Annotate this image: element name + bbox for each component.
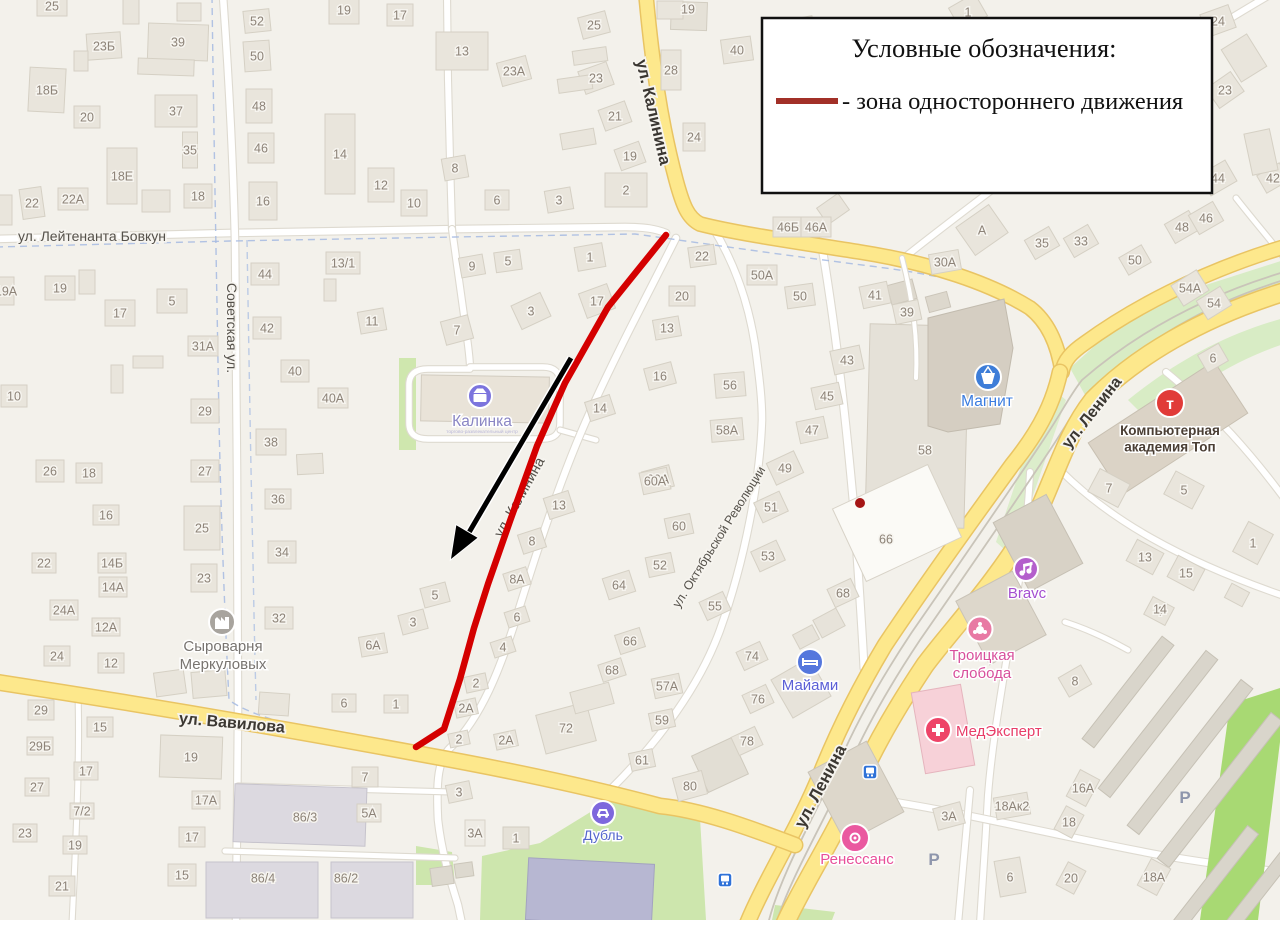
svg-text:50: 50 xyxy=(1128,254,1142,268)
svg-text:1: 1 xyxy=(587,251,594,265)
svg-text:78: 78 xyxy=(740,735,754,749)
svg-text:43: 43 xyxy=(840,354,854,368)
svg-text:14Б: 14Б xyxy=(101,557,123,571)
svg-text:6А: 6А xyxy=(365,639,381,653)
svg-text:6: 6 xyxy=(1210,352,1217,366)
svg-text:13: 13 xyxy=(1138,551,1152,565)
svg-text:36: 36 xyxy=(271,493,285,507)
svg-text:48: 48 xyxy=(252,100,266,114)
svg-text:66: 66 xyxy=(879,533,893,547)
svg-text:6: 6 xyxy=(494,194,501,208)
svg-text:50: 50 xyxy=(793,290,807,304)
svg-text:22: 22 xyxy=(25,197,39,211)
svg-text:13: 13 xyxy=(660,322,674,336)
svg-text:55: 55 xyxy=(708,600,722,614)
svg-text:23: 23 xyxy=(1218,84,1232,98)
svg-text:7: 7 xyxy=(454,324,461,338)
svg-text:20: 20 xyxy=(675,290,689,304)
svg-text:Калинка: Калинка xyxy=(452,413,512,430)
svg-text:42: 42 xyxy=(1266,172,1280,186)
svg-text:35: 35 xyxy=(1035,237,1049,251)
svg-text:19: 19 xyxy=(68,839,82,853)
svg-text:12А: 12А xyxy=(95,621,118,635)
svg-text:3: 3 xyxy=(456,786,463,800)
svg-text:23: 23 xyxy=(589,72,603,86)
svg-text:Р: Р xyxy=(1179,788,1190,807)
svg-text:50: 50 xyxy=(250,50,264,64)
svg-text:21: 21 xyxy=(608,110,622,124)
svg-text:58: 58 xyxy=(918,444,932,458)
svg-text:52: 52 xyxy=(250,15,264,29)
svg-text:59: 59 xyxy=(655,714,669,728)
svg-text:11: 11 xyxy=(366,315,379,329)
svg-text:17: 17 xyxy=(185,831,199,845)
svg-text:18Е: 18Е xyxy=(111,170,133,184)
svg-text:31А: 31А xyxy=(192,340,215,354)
svg-text:23Б: 23Б xyxy=(93,40,115,54)
svg-text:74: 74 xyxy=(745,650,759,664)
svg-text:22: 22 xyxy=(695,250,709,264)
svg-text:52: 52 xyxy=(653,559,667,573)
svg-text:2: 2 xyxy=(473,677,480,691)
svg-text:МедЭксперт: МедЭксперт xyxy=(956,723,1042,740)
svg-text:27: 27 xyxy=(30,781,44,795)
svg-text:46А: 46А xyxy=(805,221,828,235)
svg-text:86/2: 86/2 xyxy=(334,872,358,886)
svg-text:1: 1 xyxy=(513,832,520,846)
svg-text:61: 61 xyxy=(635,754,649,768)
svg-text:40А: 40А xyxy=(322,392,345,406)
svg-text:2А: 2А xyxy=(458,702,474,716)
svg-text:8: 8 xyxy=(1072,675,1079,689)
svg-text:46: 46 xyxy=(1199,212,1213,226)
svg-text:13: 13 xyxy=(552,499,566,513)
svg-text:25: 25 xyxy=(195,522,209,536)
svg-text:Меркуловых: Меркуловых xyxy=(180,656,267,673)
svg-text:т: т xyxy=(1166,396,1174,413)
svg-text:ул. Лейтенанта Бовкун: ул. Лейтенанта Бовкун xyxy=(18,228,166,244)
svg-text:19: 19 xyxy=(681,3,695,17)
svg-text:16: 16 xyxy=(653,370,667,384)
svg-text:19: 19 xyxy=(53,282,67,296)
svg-text:60: 60 xyxy=(672,520,686,534)
svg-text:25: 25 xyxy=(45,0,59,14)
svg-text:15: 15 xyxy=(93,721,107,735)
svg-text:51: 51 xyxy=(764,501,778,515)
svg-text:57А: 57А xyxy=(656,680,679,694)
svg-text:22: 22 xyxy=(37,557,51,571)
svg-text:18Ак2: 18Ак2 xyxy=(995,800,1030,814)
svg-text:14: 14 xyxy=(593,402,607,416)
svg-text:8А: 8А xyxy=(509,573,525,587)
svg-text:академия Топ: академия Топ xyxy=(1124,440,1215,455)
svg-text:26: 26 xyxy=(43,465,57,479)
svg-text:13/1: 13/1 xyxy=(331,257,355,271)
svg-text:2А: 2А xyxy=(498,734,514,748)
svg-text:27: 27 xyxy=(198,465,212,479)
svg-text:12: 12 xyxy=(104,657,118,671)
svg-text:7/2: 7/2 xyxy=(73,805,90,819)
svg-text:18Б: 18Б xyxy=(36,84,58,98)
svg-text:54: 54 xyxy=(1207,297,1221,311)
svg-text:5: 5 xyxy=(1181,484,1188,498)
svg-text:17: 17 xyxy=(79,765,93,779)
svg-text:9: 9 xyxy=(469,260,476,274)
svg-text:5: 5 xyxy=(169,295,176,309)
svg-text:45: 45 xyxy=(820,390,834,404)
svg-text:19А: 19А xyxy=(0,285,18,299)
svg-text:20: 20 xyxy=(80,111,94,125)
svg-text:30А: 30А xyxy=(934,256,957,270)
svg-text:37: 37 xyxy=(169,105,183,119)
svg-text:слобода: слобода xyxy=(953,665,1012,682)
svg-text:- зона одностороннего движения: - зона одностороннего движения xyxy=(842,88,1183,115)
svg-text:19: 19 xyxy=(623,150,637,164)
svg-text:14: 14 xyxy=(333,148,347,162)
svg-text:Дубль: Дубль xyxy=(583,827,623,843)
svg-text:40: 40 xyxy=(730,44,744,58)
svg-text:10: 10 xyxy=(407,197,421,211)
svg-text:22А: 22А xyxy=(62,193,85,207)
svg-text:3: 3 xyxy=(556,194,563,208)
svg-text:24: 24 xyxy=(687,131,701,145)
svg-text:18: 18 xyxy=(82,467,96,481)
svg-text:10: 10 xyxy=(7,390,21,404)
svg-text:Условные обозначения:: Условные обозначения: xyxy=(851,33,1116,63)
svg-text:49: 49 xyxy=(778,462,792,476)
svg-text:2: 2 xyxy=(623,184,630,198)
svg-text:Компьютерная: Компьютерная xyxy=(1120,423,1220,438)
svg-text:Bravc: Bravc xyxy=(1008,585,1047,602)
svg-text:53: 53 xyxy=(761,550,775,564)
svg-text:16: 16 xyxy=(256,195,270,209)
svg-text:17А: 17А xyxy=(195,794,218,808)
svg-text:17: 17 xyxy=(393,9,407,23)
svg-text:5: 5 xyxy=(432,589,439,603)
svg-text:19: 19 xyxy=(184,751,198,765)
svg-text:50А: 50А xyxy=(751,269,774,283)
svg-text:72: 72 xyxy=(559,722,573,736)
svg-text:20: 20 xyxy=(1064,872,1078,886)
svg-text:13: 13 xyxy=(455,45,469,59)
svg-text:3А: 3А xyxy=(941,810,957,824)
svg-text:44: 44 xyxy=(258,268,272,282)
svg-text:18: 18 xyxy=(1062,816,1076,830)
svg-text:3: 3 xyxy=(410,616,417,630)
svg-text:А: А xyxy=(978,224,987,238)
svg-text:38: 38 xyxy=(264,436,278,450)
svg-text:46: 46 xyxy=(254,142,268,156)
svg-text:2: 2 xyxy=(456,733,463,747)
svg-text:39: 39 xyxy=(900,306,914,320)
svg-text:86/4: 86/4 xyxy=(251,872,275,886)
svg-text:6: 6 xyxy=(341,697,348,711)
svg-text:29Б: 29Б xyxy=(29,740,51,754)
svg-text:Р: Р xyxy=(928,850,939,869)
svg-text:8: 8 xyxy=(452,162,459,176)
svg-text:Ренессанс: Ренессанс xyxy=(820,851,894,868)
svg-text:1: 1 xyxy=(393,698,400,712)
svg-text:14А: 14А xyxy=(102,581,125,595)
svg-text:Майами: Майами xyxy=(782,677,838,694)
svg-text:24: 24 xyxy=(50,650,64,664)
svg-text:18: 18 xyxy=(191,190,205,204)
svg-text:17: 17 xyxy=(113,307,127,321)
svg-text:4: 4 xyxy=(500,641,507,655)
svg-text:Советская ул.: Советская ул. xyxy=(224,283,240,373)
svg-text:86/3: 86/3 xyxy=(293,811,317,825)
svg-text:58А: 58А xyxy=(716,424,739,438)
svg-text:5: 5 xyxy=(505,255,512,269)
svg-text:76: 76 xyxy=(751,693,765,707)
svg-text:8: 8 xyxy=(529,535,536,549)
svg-text:66: 66 xyxy=(623,635,637,649)
svg-text:68: 68 xyxy=(605,664,619,678)
svg-text:5А: 5А xyxy=(361,807,377,821)
svg-text:56: 56 xyxy=(723,379,737,393)
svg-text:28: 28 xyxy=(664,64,678,78)
svg-text:33: 33 xyxy=(1074,235,1088,249)
svg-text:Сыроварня: Сыроварня xyxy=(183,638,262,655)
svg-text:23: 23 xyxy=(18,827,32,841)
svg-text:16А: 16А xyxy=(1072,782,1095,796)
svg-text:7: 7 xyxy=(362,771,369,785)
svg-text:18А: 18А xyxy=(1143,871,1166,885)
svg-text:21: 21 xyxy=(55,880,69,894)
svg-text:6: 6 xyxy=(1007,871,1014,885)
svg-text:6: 6 xyxy=(514,611,521,625)
svg-text:3А: 3А xyxy=(467,827,483,841)
svg-text:19: 19 xyxy=(337,4,351,18)
svg-text:42: 42 xyxy=(260,322,274,336)
svg-text:35: 35 xyxy=(183,144,197,158)
svg-text:торгово-развлекательный центр: торгово-развлекательный центр xyxy=(446,428,518,435)
svg-text:15: 15 xyxy=(175,869,189,883)
svg-text:24А: 24А xyxy=(53,604,76,618)
svg-text:54А: 54А xyxy=(1179,282,1202,296)
svg-text:60А: 60А xyxy=(644,475,667,489)
svg-text:17: 17 xyxy=(590,295,604,309)
svg-text:Троицкая: Троицкая xyxy=(949,647,1014,664)
svg-text:1: 1 xyxy=(1250,537,1257,551)
svg-text:29: 29 xyxy=(34,704,48,718)
svg-text:23А: 23А xyxy=(503,65,526,79)
svg-text:40: 40 xyxy=(288,365,302,379)
svg-text:7: 7 xyxy=(1106,482,1113,496)
svg-text:12: 12 xyxy=(374,179,388,193)
svg-text:34: 34 xyxy=(275,546,289,560)
svg-text:48: 48 xyxy=(1175,221,1189,235)
svg-text:47: 47 xyxy=(805,424,819,438)
svg-text:15: 15 xyxy=(1179,567,1193,581)
svg-text:39: 39 xyxy=(171,36,185,50)
svg-text:80: 80 xyxy=(683,780,697,794)
svg-text:25: 25 xyxy=(587,19,601,33)
svg-text:32: 32 xyxy=(272,612,286,626)
svg-text:29: 29 xyxy=(198,405,212,419)
svg-text:Магнит: Магнит xyxy=(961,393,1013,410)
svg-text:23: 23 xyxy=(197,572,211,586)
svg-text:46Б: 46Б xyxy=(777,221,799,235)
svg-text:64: 64 xyxy=(612,579,626,593)
svg-text:3: 3 xyxy=(528,305,535,319)
svg-text:41: 41 xyxy=(868,289,882,303)
svg-text:14: 14 xyxy=(1153,603,1167,617)
svg-text:68: 68 xyxy=(836,587,850,601)
svg-text:16: 16 xyxy=(99,509,113,523)
